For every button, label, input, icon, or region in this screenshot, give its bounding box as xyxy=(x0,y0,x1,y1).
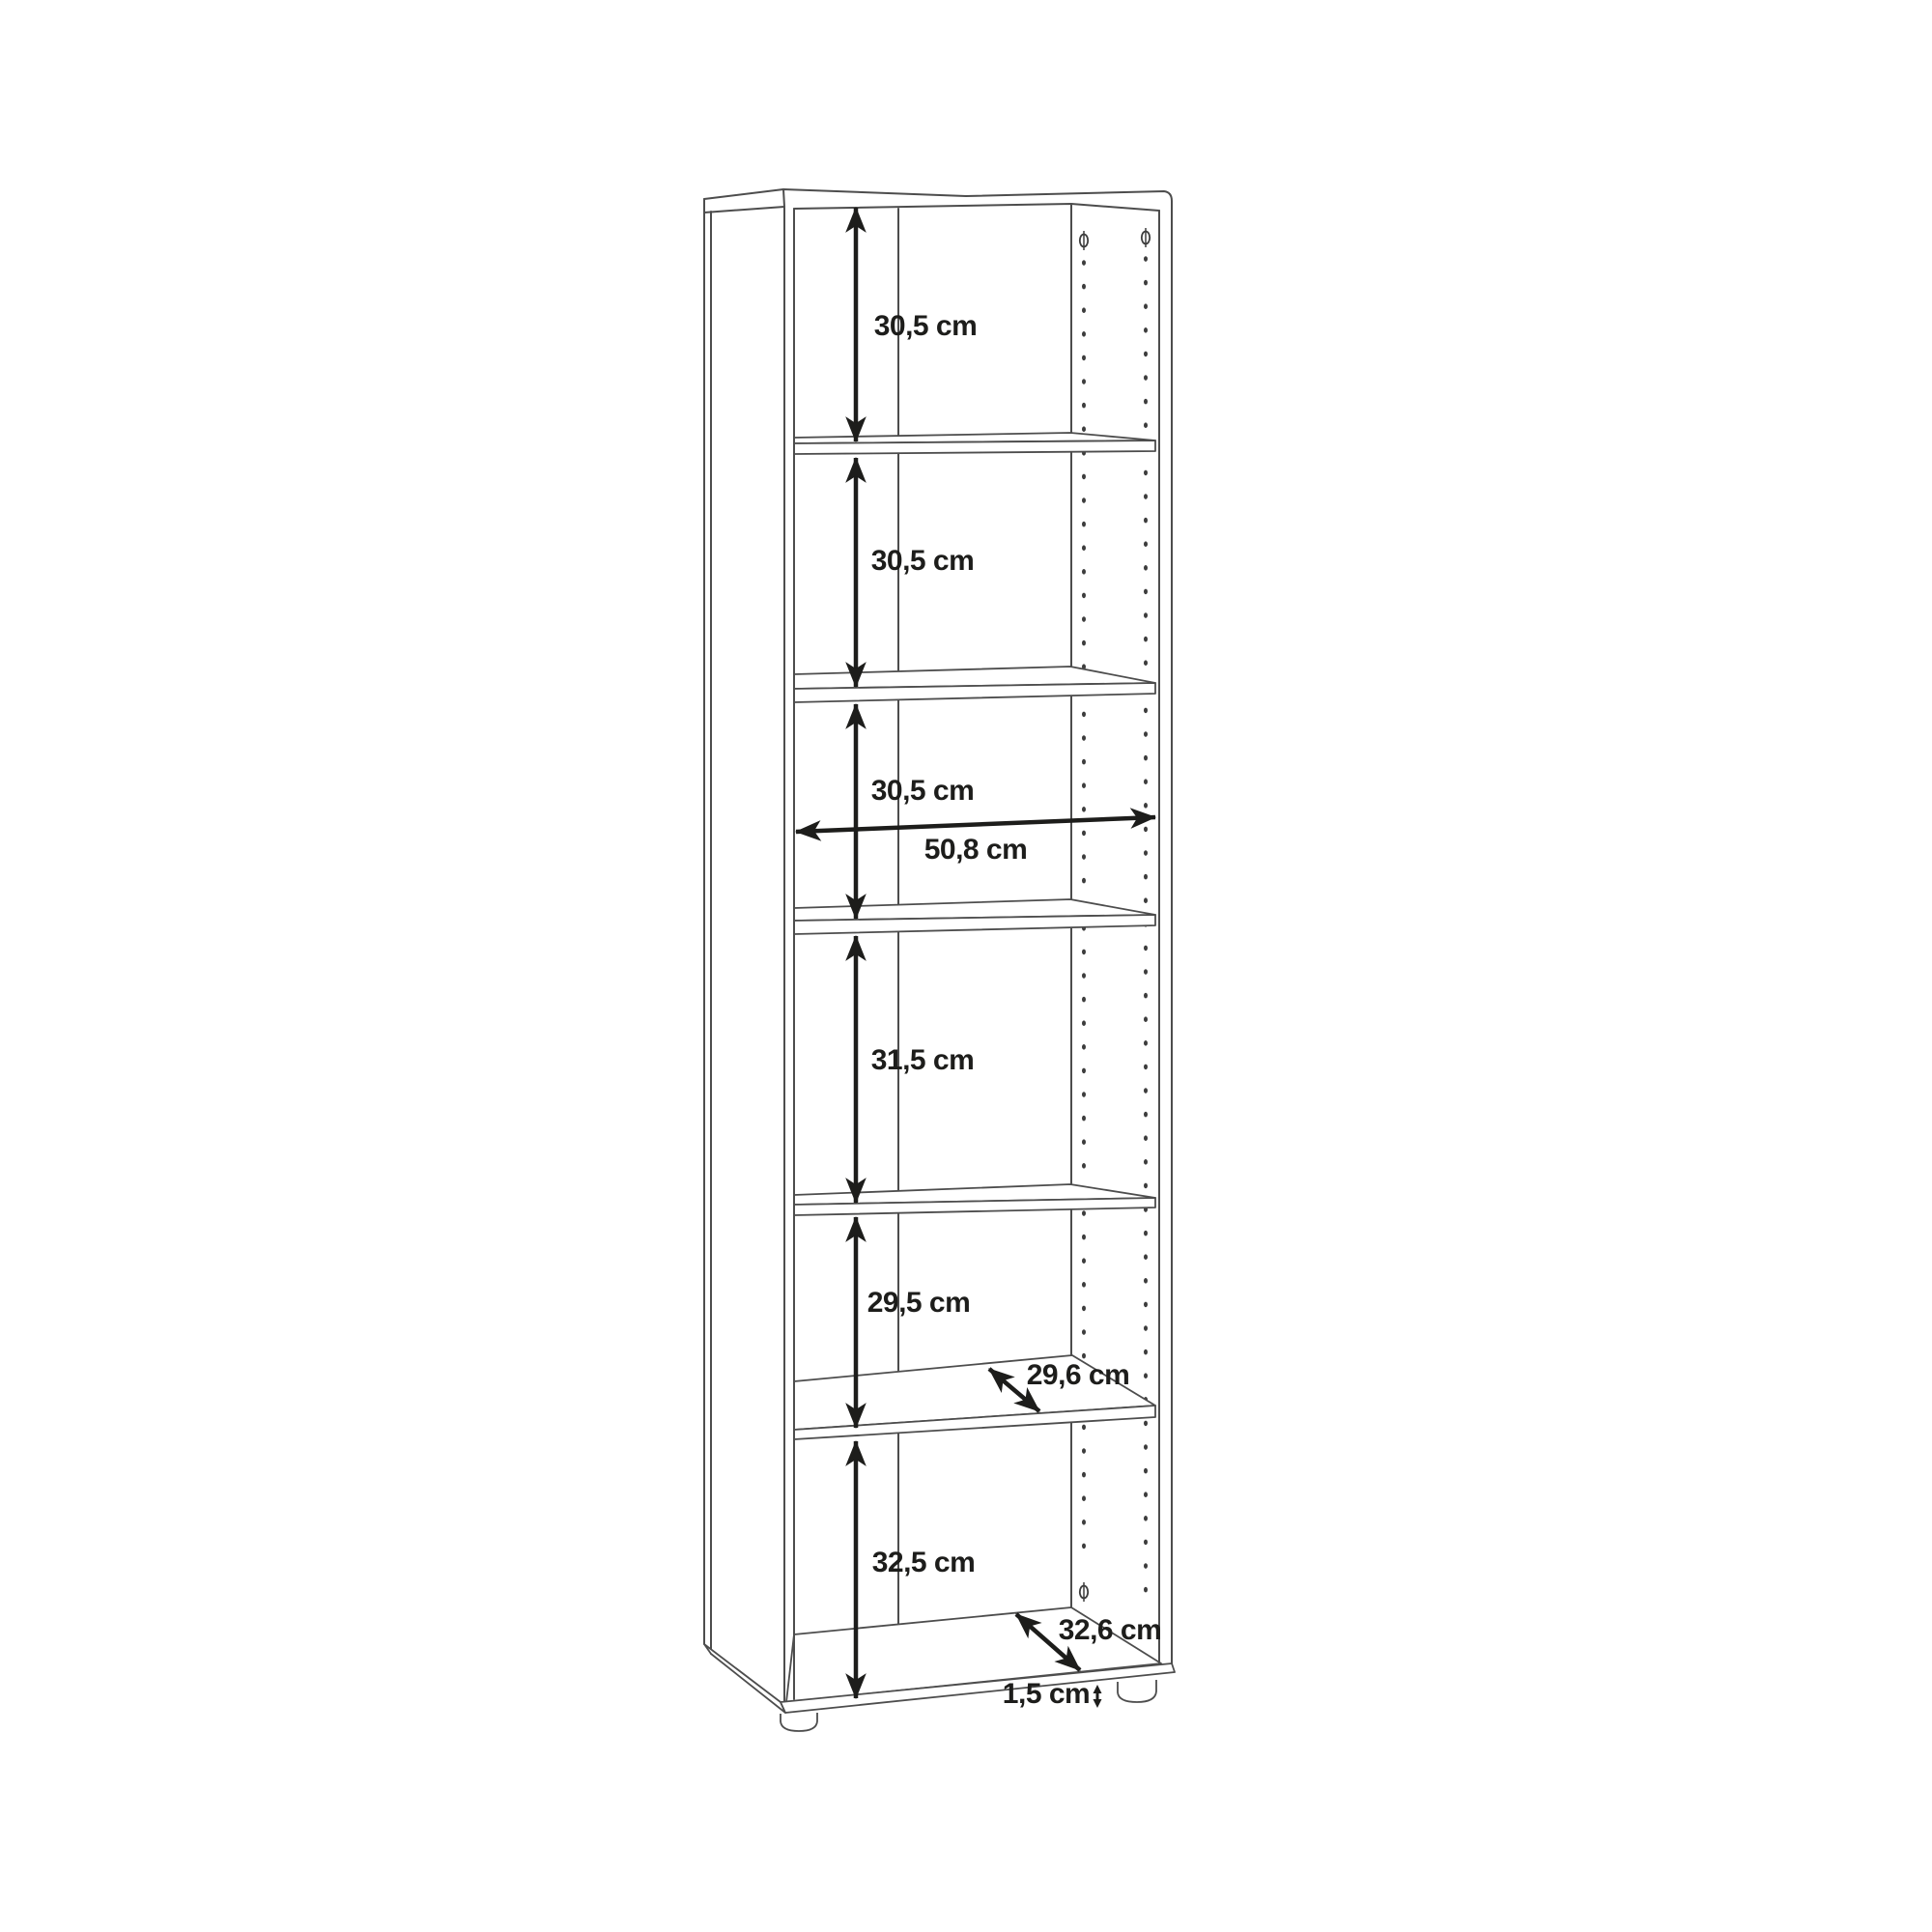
shelf-pin-hole xyxy=(1144,1065,1148,1070)
keyhole-slot-bottom-back xyxy=(1080,1582,1088,1602)
shelf-pin-hole xyxy=(1144,1088,1148,1094)
shelf-pin-hole xyxy=(1144,779,1148,784)
shelf-3 xyxy=(794,899,1155,934)
shelf-pin-hole xyxy=(1144,565,1148,571)
shelf-pin-hole xyxy=(1082,1282,1086,1288)
shelf-pin-hole xyxy=(1082,474,1086,480)
dimension-arrows xyxy=(796,208,1155,1708)
shelf-pin-hole xyxy=(1144,1278,1148,1284)
shelf-pin-hole xyxy=(1082,1210,1086,1216)
shelf-pin-hole xyxy=(1082,712,1086,718)
shelf-pin-hole xyxy=(1082,403,1086,409)
shelf-pin-hole xyxy=(1144,969,1148,975)
dimension-labels: 30,5 cm 30,5 cm 30,5 cm 50,8 cm 31,5 cm … xyxy=(867,310,1162,1710)
shelf-pin-hole xyxy=(1144,1516,1148,1521)
shelf-pin-hole xyxy=(1144,637,1148,642)
keyhole-slot-top-back xyxy=(1080,231,1088,250)
shelf-pin-hole xyxy=(1144,1254,1148,1260)
shelf-pin-hole xyxy=(1082,545,1086,551)
foot-right xyxy=(1118,1680,1156,1702)
shelf-pin-hole xyxy=(1144,755,1148,761)
shelf-pin-hole xyxy=(1082,1495,1086,1501)
shelf-pin-hole xyxy=(1082,1068,1086,1074)
shelf-pin-hole xyxy=(1082,593,1086,599)
shelf-pin-hole xyxy=(1144,280,1148,286)
shelf-pin-hole xyxy=(1144,399,1148,405)
diagram-canvas: 30,5 cm 30,5 cm 30,5 cm 50,8 cm 31,5 cm … xyxy=(0,0,1932,1932)
shelf-pin-hole xyxy=(1082,1425,1086,1431)
shelf-2 xyxy=(794,667,1155,702)
dim-label-compartment-2: 30,5 cm xyxy=(871,545,975,577)
shelf-pin-hole xyxy=(1144,470,1148,476)
shelf-pin-hole xyxy=(1144,327,1148,333)
cabinet-carcass xyxy=(704,189,1172,1702)
shelf-pin-hole xyxy=(1144,1231,1148,1236)
shelf-pin-hole xyxy=(1082,426,1086,432)
shelf-pin-hole xyxy=(1144,375,1148,381)
shelf-pin-hole xyxy=(1144,993,1148,999)
shelf-pin-hole xyxy=(1082,1306,1086,1312)
shelf-pin-hole xyxy=(1144,1373,1148,1378)
shelf-pin-hole xyxy=(1082,1163,1086,1169)
dim-arrow-foot-height xyxy=(1094,1685,1102,1708)
front-left-top-corner xyxy=(783,189,784,207)
shelf-pin-hole xyxy=(1144,612,1148,618)
dim-label-compartment-4: 31,5 cm xyxy=(871,1044,975,1076)
shelf-pin-hole xyxy=(1144,1135,1148,1141)
foot-left xyxy=(781,1713,817,1731)
shelf-pin-hole xyxy=(1144,1444,1148,1450)
keyhole-slot-top-front xyxy=(1142,228,1150,247)
shelf-pin-hole xyxy=(1082,878,1086,884)
shelf-pin-hole xyxy=(1082,807,1086,812)
shelf-pin-hole xyxy=(1082,379,1086,384)
shelf-pin-hole xyxy=(1082,1020,1086,1026)
shelf-pin-hole xyxy=(1082,1448,1086,1454)
shelf-pin-hole xyxy=(1144,731,1148,737)
shelf-pin-hole xyxy=(1144,1587,1148,1593)
shelf-pin-hole xyxy=(1082,522,1086,527)
bottom-left-side-edge xyxy=(704,1644,785,1713)
shelf-pin-hole xyxy=(1082,1044,1086,1050)
top-band-inner-left xyxy=(704,207,784,213)
bookcase-dimension-drawing: 30,5 cm 30,5 cm 30,5 cm 50,8 cm 31,5 cm … xyxy=(0,0,1932,1932)
shelves xyxy=(794,433,1155,1439)
shelf-pin-hole xyxy=(1144,1016,1148,1022)
shelf-pin-hole xyxy=(1144,1159,1148,1165)
shelf-pin-hole xyxy=(1082,1092,1086,1097)
shelf-pin-hole xyxy=(1082,854,1086,860)
shelf-pin-hole xyxy=(1144,1421,1148,1427)
shelf-pin-hole xyxy=(1082,260,1086,266)
shelf-pin-hole xyxy=(1144,303,1148,309)
shelf-pin-hole xyxy=(1082,1520,1086,1525)
shelf-pin-hole xyxy=(1082,1329,1086,1335)
shelf-pin-hole xyxy=(1144,541,1148,547)
shelf-pin-hole xyxy=(1144,422,1148,428)
shelf-pin-hole xyxy=(1144,1492,1148,1497)
shelf-pin-hole xyxy=(1144,946,1148,952)
shelf-pin-hole xyxy=(1144,1040,1148,1046)
shelf-1 xyxy=(794,433,1155,454)
dim-label-compartment-5: 29,5 cm xyxy=(867,1287,971,1319)
shelf-pin-hole xyxy=(1082,307,1086,313)
shelf-pin-hole xyxy=(1144,1468,1148,1474)
shelf-pin-hole xyxy=(1082,1258,1086,1264)
shelf-pin-hole xyxy=(1144,897,1148,903)
shelf-pin-hole xyxy=(1082,331,1086,337)
shelf-pin-hole xyxy=(1082,1353,1086,1359)
interior-top-edge xyxy=(794,204,1159,211)
dim-label-shelf-depth: 29,6 cm xyxy=(1027,1359,1130,1391)
shelf-pin-hole xyxy=(1144,1183,1148,1189)
shelf-pin-hole xyxy=(1082,1139,1086,1145)
shelf-pin-hole xyxy=(1082,1544,1086,1549)
shelf-pin-hole xyxy=(1082,950,1086,955)
shelf-pin-hole xyxy=(1082,1235,1086,1240)
dim-label-compartment-3: 30,5 cm xyxy=(871,775,975,807)
shelf-pin-hole xyxy=(1144,1540,1148,1546)
shelf-pin-hole xyxy=(1082,735,1086,741)
shelf-pin-hole xyxy=(1144,803,1148,809)
shelf-pin-hole xyxy=(1144,352,1148,357)
shelf-pin-hole xyxy=(1144,256,1148,262)
dim-label-foot-height: 1,5 cm xyxy=(1003,1678,1090,1710)
shelf-pin-hole xyxy=(1144,1350,1148,1355)
shelf-pin-hole xyxy=(1082,997,1086,1003)
shelf-pin-hole xyxy=(1082,782,1086,788)
shelf-pin-hole xyxy=(1082,284,1086,290)
shelf-pin-hole xyxy=(1144,660,1148,666)
shelf-4 xyxy=(794,1184,1155,1215)
shelf-pin-hole xyxy=(1144,1563,1148,1569)
shelf-pin-hole xyxy=(1082,616,1086,622)
shelf-pin-hole xyxy=(1082,1116,1086,1122)
dim-label-inner-width: 50,8 cm xyxy=(924,834,1028,866)
shelf-pin-hole xyxy=(1144,827,1148,833)
shelf-pin-hole xyxy=(1082,640,1086,646)
shelf-pin-hole xyxy=(1082,355,1086,361)
shelf-pin-hole xyxy=(1144,1325,1148,1331)
shelf-pin-hole xyxy=(1144,589,1148,595)
shelf-pin-hole xyxy=(1144,708,1148,714)
dim-label-compartment-1: 30,5 cm xyxy=(874,310,978,342)
shelf-pin-hole xyxy=(1144,1302,1148,1308)
shelf-pin-hole xyxy=(1144,494,1148,499)
dim-label-compartment-6: 32,5 cm xyxy=(872,1547,976,1578)
shelf-pin-hole xyxy=(1082,759,1086,765)
shelf-pin-hole xyxy=(1144,1112,1148,1118)
dim-label-bottom-depth: 32,6 cm xyxy=(1059,1614,1162,1646)
shelf-pin-hole xyxy=(1082,569,1086,575)
shelf-pin-hole xyxy=(1082,831,1086,837)
shelf-pin-hole xyxy=(1082,1472,1086,1478)
cabinet-interior xyxy=(786,204,1161,1702)
shelf-pin-hole xyxy=(1144,518,1148,524)
shelf-pin-hole xyxy=(1144,874,1148,880)
shelf-pin-hole xyxy=(1144,850,1148,856)
dim-arrow-inner-width xyxy=(796,817,1155,832)
shelf-pin-hole xyxy=(1082,973,1086,979)
shelf-pin-hole xyxy=(1082,497,1086,503)
